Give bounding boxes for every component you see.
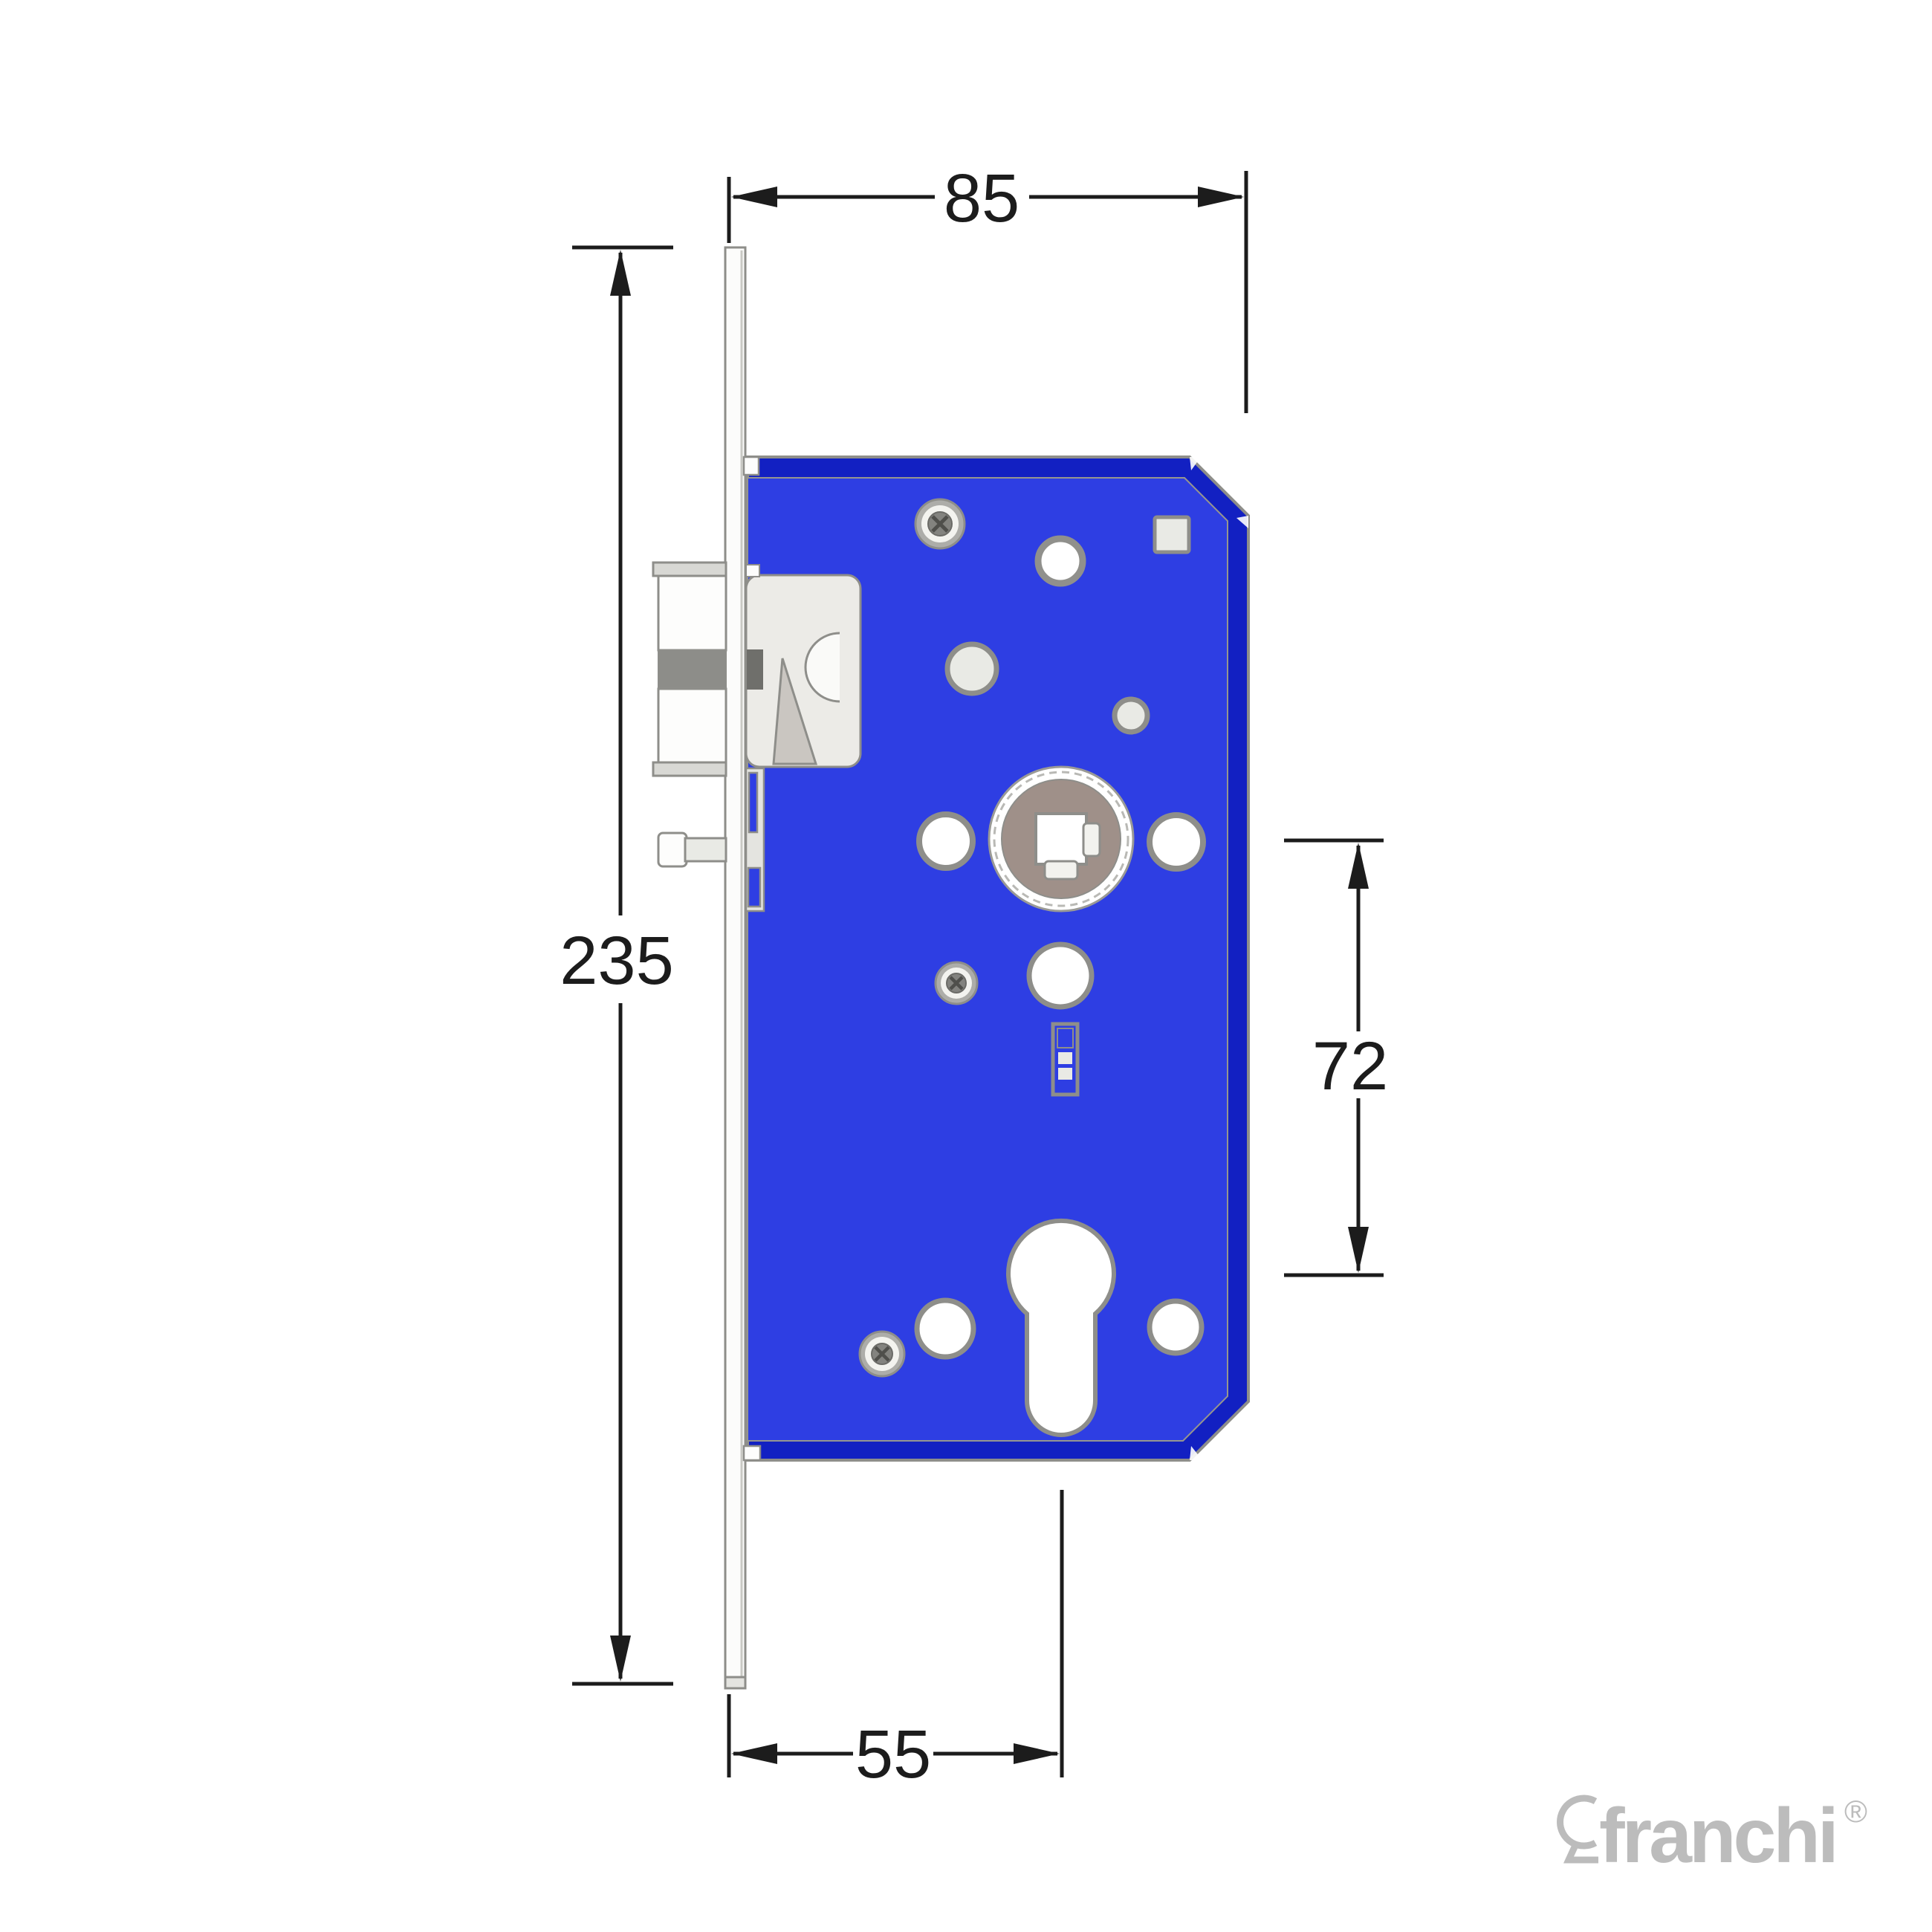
hole-mid-left <box>947 644 996 693</box>
latch-top-lip <box>653 563 726 576</box>
case-bottom-left-step <box>744 1446 760 1460</box>
hub-clip-right <box>1083 823 1100 856</box>
hole-bottom-left <box>917 1300 973 1357</box>
hole-bottom-right <box>1150 1301 1202 1353</box>
latch-bevel-band <box>658 650 726 689</box>
deadlatch-pin <box>658 833 726 866</box>
dimension-centres: 72 <box>1284 840 1388 1275</box>
arrow-up-icon <box>1348 843 1369 889</box>
handle-fixing-hole-right <box>1150 815 1203 869</box>
latch-upper-face <box>658 576 726 650</box>
latch-guide-block <box>747 649 763 690</box>
side-slot-upper <box>749 773 757 832</box>
deadlatch-pin-cap <box>658 833 687 866</box>
arrow-down-icon <box>610 1636 631 1682</box>
spindle-hub <box>989 767 1133 911</box>
deadlatch-pin-stem <box>685 838 726 861</box>
hole-top-center <box>1038 539 1083 583</box>
faceplate <box>725 247 745 1688</box>
case-side-channel <box>746 768 764 911</box>
dimension-label-55: 55 <box>855 1717 931 1792</box>
dimension-faceplate-height: 235 <box>560 247 674 1684</box>
slot-cell-2 <box>1058 1068 1072 1080</box>
dimension-label-235: 235 <box>560 923 674 999</box>
arrow-right-icon <box>1014 1743 1060 1764</box>
slot-cell-1 <box>1058 1052 1072 1064</box>
arrow-left-icon <box>731 187 777 207</box>
registered-mark: ® <box>1844 1794 1867 1829</box>
square-hole-top-right <box>1155 517 1189 552</box>
handle-fixing-hole-left <box>919 814 973 868</box>
brand-logo-text: franchi <box>1599 1793 1836 1879</box>
slot-cell-open <box>1057 1028 1073 1048</box>
hole-mid-small <box>1115 699 1147 732</box>
dimension-backset: 55 <box>729 1490 1062 1792</box>
case-screw-top <box>915 499 965 548</box>
mechanism-top-notch <box>746 565 759 577</box>
latch-lower-face <box>658 689 726 762</box>
faceplate-bottom-cap <box>725 1677 745 1688</box>
latch-bottom-lip <box>653 762 726 776</box>
lock-technical-drawing: 85 235 72 55 franchi ® <box>0 0 1932 1932</box>
arrow-up-icon <box>610 250 631 296</box>
case-screw-middle <box>936 962 977 1004</box>
hole-below-hub <box>1029 944 1092 1007</box>
case-screw-bottom <box>860 1332 904 1376</box>
dimension-label-85: 85 <box>944 161 1020 236</box>
latch-bolt <box>653 563 726 776</box>
case-top-left-notch <box>744 457 759 475</box>
hub-clip-bottom <box>1045 861 1077 879</box>
dimension-case-depth: 85 <box>729 161 1246 413</box>
keyhole-icon <box>1560 1798 1595 1846</box>
arrow-right-icon <box>1198 187 1244 207</box>
arrow-down-icon <box>1348 1227 1369 1273</box>
brand-logo: franchi ® <box>1560 1793 1867 1879</box>
side-slot-lower <box>748 868 760 907</box>
dimension-label-72: 72 <box>1312 1028 1388 1104</box>
latch-mechanism <box>746 565 860 767</box>
square-follower-hole <box>1036 814 1086 864</box>
mortice-lock-drawing-page: 85 235 72 55 franchi ® <box>0 0 1932 1932</box>
arrow-left-icon <box>731 1743 777 1764</box>
